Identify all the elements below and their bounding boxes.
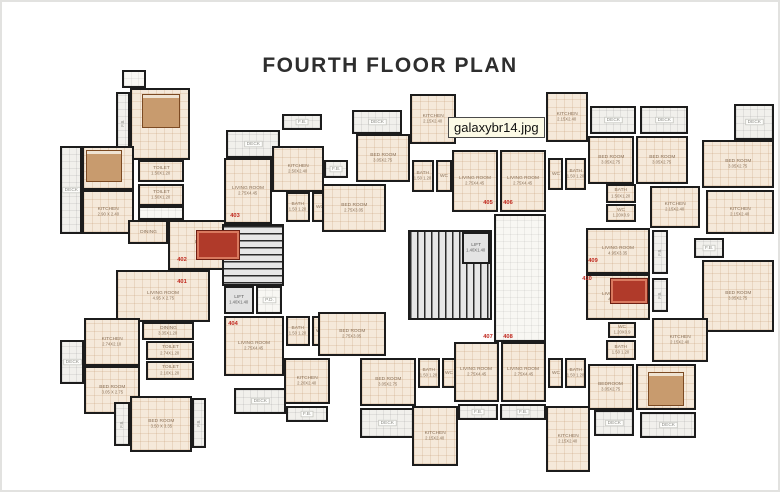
tr-deck-far-label: DECK: [745, 119, 763, 126]
left-dining-401-dims: 3.35X1.20: [158, 332, 177, 336]
tr-bedroom-east: BED ROOM3.05X2.75: [636, 136, 688, 184]
tr-bedroom-far-dims: 3.05X2.75: [728, 165, 747, 169]
ct-kitchen-west-label: KITCHEN: [422, 113, 443, 118]
tr-deck-2: DECK: [640, 106, 688, 134]
left-deck-west-label: DECK: [62, 187, 80, 194]
cl-kitchen-403: KITCHEN2.50X2.40: [272, 146, 324, 192]
left-fb-top-label: F.B.: [121, 118, 125, 128]
rw-wc-410-dims: 1.20X0.9: [614, 331, 631, 335]
cl-lift: LIFT1.40X1.40: [224, 286, 254, 314]
tr-bedroom-far: BED ROOM3.05X2.75: [702, 140, 774, 188]
cb-kitchen-east: KITCHEN2.15X2.40: [546, 406, 590, 472]
bed-furniture: [142, 94, 180, 128]
flat-number-403: 403: [230, 213, 240, 219]
cb-wc-east: WC: [548, 358, 563, 388]
left-toilet-4: TOILET2.10X1.20: [146, 361, 194, 380]
bed-furniture: [86, 150, 122, 182]
flat-number-407: 407: [483, 334, 493, 340]
cl-fb-404-label: F.B.: [300, 411, 313, 418]
cl-kitchen-404-dims: 2.20X2.40: [297, 382, 316, 386]
rw-fb-410-label: F.B.: [658, 290, 662, 300]
cb-bath-west: BATH1.50 1.20: [418, 358, 440, 388]
left-dining-401-label: DINING: [160, 325, 177, 330]
cb-bedroom-1-label: BED ROOM: [375, 376, 401, 381]
rug-furniture: [610, 278, 648, 304]
rw-deck-2-label: DECK: [659, 422, 677, 429]
rw-bedroom-far-label: BED ROOM: [725, 290, 751, 295]
cb-fb-2-label: F.B.: [516, 409, 529, 416]
rw-bedroom-far: BED ROOM3.05X2.75: [702, 260, 774, 332]
cb-living-east-label: LIVING ROOM: [507, 366, 539, 371]
core-lobby: [494, 214, 546, 342]
cl-bath-403-dims: 1.50 1.20: [289, 208, 307, 212]
cb-bath-east-dims: 1.50 1.20: [567, 374, 585, 378]
left-fb-bottom-west-label: F.B.: [120, 419, 124, 429]
tr-bedroom-west-dims: 3.05X2.75: [601, 161, 620, 165]
ct-kitchen-east-label: KITCHEN: [556, 111, 577, 116]
cb-bedroom-1: BED ROOM3.05X2.75: [360, 358, 416, 406]
left-kitchen-402: KITCHEN2.90 X 2.40: [82, 190, 134, 234]
cb-bath-east-label: BATH: [569, 367, 581, 372]
left-bedroom-bottom-dims: 3.50 X 3.35: [150, 425, 171, 429]
left-deck-south-label: DECK: [63, 359, 81, 366]
rw-deck-2: DECK: [640, 412, 696, 438]
cb-living-east: LIVING ROOM2.75X4.45: [501, 342, 546, 402]
ct-bedroom-west: BED ROOM3.05X2.75: [356, 134, 410, 182]
tr-bedroom-west: BED ROOM3.05X2.75: [588, 136, 634, 184]
cb-bath-west-label: BATH: [423, 367, 435, 372]
rw-living-409-label: LIVING ROOM: [602, 245, 634, 250]
cl-pd: P.D.: [256, 286, 282, 314]
cl-bedroom-403-dims: 2.75X3.05: [344, 209, 363, 213]
cl-deck-404: DECK: [234, 388, 286, 414]
ct-bedroom-west-label: BED ROOM: [370, 152, 396, 157]
cb-fb-1: F.B.: [458, 404, 498, 420]
cl-living-404-dims: 2.75X4.45: [244, 347, 263, 351]
rug-furniture: [196, 230, 240, 260]
tr-bath: BATH1.50X1.20: [606, 184, 636, 203]
left-bedroom-bottom-label: BED ROOM: [148, 418, 174, 423]
left-kitchen-401: KITCHEN2.74X2.10: [84, 318, 140, 366]
cl-bedroom-403-label: BED ROOM: [341, 202, 367, 207]
cb-bath-west-dims: 1.50 1.20: [420, 374, 438, 378]
core-lift: LIFT1.40X1.40: [462, 232, 490, 264]
cb-kitchen-west-dims: 2.15X2.40: [425, 437, 444, 441]
flat-number-409: 409: [588, 258, 598, 264]
rw-bedroom-far-dims: 3.05X2.75: [728, 297, 747, 301]
cb-bedroom-east-dims: 3.05X2.75: [601, 388, 620, 392]
ct-kitchen-east: KITCHEN2.15X2.40: [546, 92, 588, 142]
tr-kitchen-far-dims: 2.15X2.40: [730, 213, 749, 217]
ct-wc-west: WC: [436, 160, 452, 192]
tr-kitchen: KITCHEN2.15X2.40: [650, 186, 700, 228]
tr-deck-1: DECK: [590, 106, 636, 134]
cb-living-west-dims: 2.75X4.45: [467, 373, 486, 377]
cl-bedroom-404: BED ROOM2.75X3.05: [318, 312, 386, 356]
left-fb-bottom-east: F.B.: [192, 398, 206, 448]
rw-kitchen-410-dims: 2.15X2.40: [670, 341, 689, 345]
cl-living-403-dims: 2.75X4.45: [238, 192, 257, 196]
left-dining-402: DINING: [128, 220, 168, 244]
cl-fb-top-label: F.B.: [295, 119, 308, 126]
left-toilet-4-label: TOILET: [162, 365, 179, 370]
flat-number-404: 404: [228, 321, 238, 327]
cl-bath-404-dims: 1.50 1.20: [289, 332, 307, 336]
filename-label: galaxybr14.jpg: [448, 117, 545, 138]
ct-deck: DECK: [352, 110, 402, 134]
cl-fb-east-label: F.B.: [329, 166, 342, 173]
ct-bedroom-west-dims: 3.05X2.75: [373, 159, 392, 163]
cb-bedroom-1-dims: 3.05X2.75: [378, 383, 397, 387]
cb-living-east-dims: 2.75X4.45: [514, 373, 533, 377]
ct-deck-label: DECK: [368, 119, 386, 126]
cl-living-403-label: LIVING ROOM: [232, 185, 264, 190]
rw-bath-410-dims: 1.50 1.20: [612, 351, 630, 355]
left-toilet-2-dims: 1.50X1.20: [151, 196, 170, 200]
left-toilet-3-label: TOILET: [162, 345, 179, 350]
cl-deck-404-label: DECK: [251, 398, 269, 405]
flat-number-406: 406: [503, 200, 513, 206]
cb-kitchen-west: KITCHEN2.15X2.40: [412, 406, 458, 466]
left-dining-401: DINING3.35X1.20: [142, 322, 194, 340]
left-passage: [138, 206, 184, 220]
rw-bath-410: BATH1.50 1.20: [606, 340, 636, 360]
cb-fb-1-label: F.B.: [471, 409, 484, 416]
left-toilet-3-dims: 2.74X1.20: [160, 351, 179, 355]
rw-fb-410: F.B.: [652, 278, 668, 312]
cb-bedroom-east-label: BEDROOM: [599, 381, 624, 386]
cb-kitchen-east-dims: 2.15X2.40: [558, 440, 577, 444]
left-kitchen-401-label: KITCHEN: [101, 336, 122, 341]
cl-bedroom-403: BED ROOM2.75X3.05: [322, 184, 386, 232]
cb-living-west: LIVING ROOM2.75X4.45: [454, 342, 499, 402]
cl-fb-404: F.B.: [286, 406, 328, 422]
cl-lift-dims: 1.40X1.40: [229, 301, 248, 305]
tr-deck-far: DECK: [734, 104, 774, 140]
left-fb-bottom-east-label: F.B.: [197, 418, 201, 428]
tr-wc-label: WC: [617, 207, 625, 212]
flat-number-408: 408: [503, 334, 513, 340]
flat-number-410: 410: [582, 276, 592, 282]
cb-deck: DECK: [360, 408, 414, 438]
left-kitchen-401-dims: 2.74X2.10: [102, 343, 121, 347]
left-dining-402-label: DINING: [140, 229, 157, 234]
cl-kitchen-403-label: KITCHEN: [287, 163, 308, 168]
bed-furniture: [648, 372, 684, 406]
tr-kitchen-dims: 2.15X2.40: [665, 208, 684, 212]
left-toilet-2-label: TOILET: [153, 189, 170, 194]
left-bedroom-south-dims: 3.05 X 2.75: [101, 391, 122, 395]
left-bedroom-south-label: BED ROOM: [99, 384, 125, 389]
left-living-401: LIVING ROOM4.95 X 2.75: [116, 270, 210, 322]
cl-bath-403: BATH1.50 1.20: [286, 192, 310, 222]
cl-fb-east: F.B.: [324, 160, 348, 178]
cl-bath-404-label: BATH: [292, 325, 304, 330]
ct-bath-east-dims: 1.50 1.20: [567, 175, 585, 179]
rw-deck-1: DECK: [594, 410, 634, 436]
ct-living-west-label: LIVING ROOM: [459, 175, 491, 180]
ct-bath-east-label: BATH: [569, 168, 581, 173]
tr-bedroom-west-label: BED ROOM: [598, 154, 624, 159]
cl-bath-404: BATH1.50 1.20: [286, 316, 310, 346]
core-lift-dims: 1.40X1.40: [466, 249, 485, 253]
cb-bedroom-east: BEDROOM3.05X2.75: [588, 364, 634, 410]
ct-kitchen-west-dims: 2.15X2.40: [423, 120, 442, 124]
tr-bath-label: BATH: [615, 188, 627, 193]
rw-bath-410-label: BATH: [615, 344, 627, 349]
cl-kitchen-403-dims: 2.50X2.40: [288, 170, 307, 174]
cb-fb-2: F.B.: [500, 404, 546, 420]
cb-kitchen-east-label: KITCHEN: [557, 433, 578, 438]
flat-number-405: 405: [483, 200, 493, 206]
tr-kitchen-label: KITCHEN: [664, 201, 685, 206]
cl-deck-top-label: DECK: [244, 141, 262, 148]
rw-fb-409: F.B.: [652, 230, 668, 274]
left-fb-top: F.B.: [116, 92, 130, 154]
core-lift-label: LIFT: [471, 242, 481, 247]
rw-kitchen-410: KITCHEN2.15X2.40: [652, 318, 708, 362]
rw-living-409-dims: 4.95X3.35: [608, 252, 627, 256]
left-living-401-label: LIVING ROOM: [147, 290, 179, 295]
ct-living-east-label: LIVING ROOM: [507, 175, 539, 180]
cl-kitchen-404: KITCHEN2.20X2.40: [284, 358, 330, 404]
left-toilet-1: TOILET1.50X1.20: [138, 160, 184, 182]
flat-number-401: 401: [177, 279, 187, 285]
floor-plan: BED ROOM3.50 X 3.35F.B.BED ROOM2.90 X 2.…: [0, 0, 780, 492]
tr-kitchen-far: KITCHEN2.15X2.40: [706, 190, 774, 234]
left-toilet-1-dims: 1.50X1.20: [151, 172, 170, 176]
left-fb-bottom-west: F.B.: [114, 402, 130, 446]
ct-bath-west: BATH1.50 1.20: [412, 160, 434, 192]
left-toilet-3: TOILET2.74X1.20: [146, 341, 194, 360]
tr-deck-1-label: DECK: [604, 117, 622, 124]
tr-fb: F.B.: [694, 238, 724, 258]
rw-fb-409-label: F.B.: [658, 247, 662, 257]
cl-bath-403-label: BATH: [292, 201, 304, 206]
left-deck-west: DECK: [60, 146, 82, 234]
ct-bath-west-dims: 1.50 1.20: [414, 177, 432, 181]
left-toilet-1-label: TOILET: [153, 165, 170, 170]
cl-bedroom-404-label: BED ROOM: [339, 328, 365, 333]
cb-bath-east: BATH1.50 1.20: [565, 358, 586, 388]
left-bedroom-bottom: BED ROOM3.50 X 3.35: [130, 396, 192, 452]
cb-kitchen-west-label: KITCHEN: [424, 430, 445, 435]
tr-bedroom-far-label: BED ROOM: [725, 158, 751, 163]
left-top-box: [122, 70, 146, 88]
flat-number-402: 402: [177, 257, 187, 263]
rw-deck-1-label: DECK: [605, 420, 623, 427]
cb-living-west-label: LIVING ROOM: [460, 366, 492, 371]
ct-wc-east-label: WC: [552, 171, 560, 176]
left-living-401-dims: 4.95 X 2.75: [152, 297, 173, 301]
cl-pd-label: P.D.: [262, 297, 276, 304]
cl-kitchen-404-label: KITCHEN: [296, 375, 317, 380]
rw-living-409: LIVING ROOM4.95X3.35: [586, 228, 650, 274]
rw-kitchen-410-label: KITCHEN: [669, 334, 690, 339]
ct-living-west-dims: 2.75X4.45: [465, 182, 484, 186]
cb-wc-east-label: WC: [552, 370, 560, 375]
cl-living-404-label: LIVING ROOM: [238, 340, 270, 345]
left-toilet-4-dims: 2.10X1.20: [160, 371, 179, 375]
tr-bath-dims: 1.50X1.20: [611, 194, 630, 198]
ct-kitchen-east-dims: 2.15X2.40: [557, 118, 576, 122]
ct-wc-east: WC: [548, 158, 563, 190]
rw-wc-410-label: WC: [618, 324, 626, 329]
cl-fb-top: F.B.: [282, 114, 322, 130]
cb-deck-label: DECK: [378, 420, 396, 427]
left-kitchen-402-dims: 2.90 X 2.40: [97, 213, 118, 217]
cl-lift-label: LIFT: [234, 294, 244, 299]
tr-fb-label: F.B.: [702, 245, 715, 252]
tr-bedroom-east-dims: 3.05X2.75: [652, 161, 671, 165]
tr-wc-dims: 1.20X0.9: [613, 214, 630, 218]
cb-wc-west-label: WC: [445, 370, 453, 375]
ct-living-east-dims: 2.75X4.45: [513, 182, 532, 186]
tr-bedroom-east-label: BED ROOM: [649, 154, 675, 159]
cl-bedroom-404-dims: 2.75X3.05: [342, 335, 361, 339]
ct-bath-west-label: BATH: [417, 170, 429, 175]
left-kitchen-402-label: KITCHEN: [97, 206, 118, 211]
tr-kitchen-far-label: KITCHEN: [729, 206, 750, 211]
tr-wc: WC1.20X0.9: [606, 204, 636, 222]
left-toilet-2: TOILET1.50X1.20: [138, 184, 184, 206]
left-deck-south: DECK: [60, 340, 84, 384]
rw-wc-410: WC1.20X0.9: [608, 322, 636, 338]
ct-wc-west-label: WC: [440, 173, 448, 178]
ct-bath-east: BATH1.50 1.20: [565, 158, 586, 190]
tr-deck-2-label: DECK: [655, 117, 673, 124]
